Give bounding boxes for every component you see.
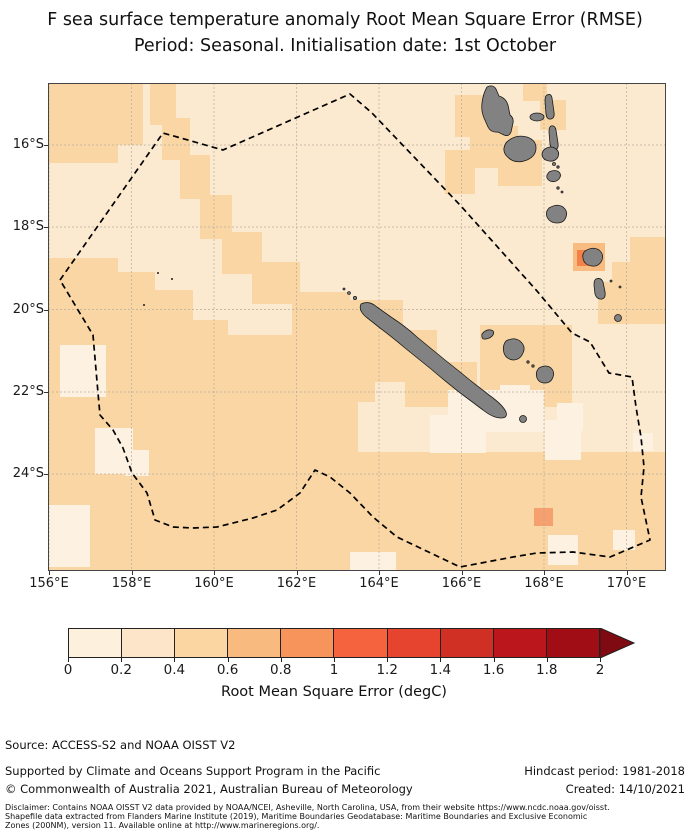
land-mare: [536, 366, 553, 383]
copyright-text: © Commonwealth of Australia 2021, Austra…: [5, 782, 413, 796]
lat-tickmark: [44, 145, 48, 146]
lon-tickmark: [132, 571, 133, 575]
source-text: Source: ACCESS-S2 and NOAA OISST V2: [5, 738, 235, 752]
cell-south-isolated: [534, 508, 553, 526]
colorbar-tickmark: [121, 658, 122, 662]
disclaimer-line-1: Disclaimer: Contains NOAA OISST V2 data …: [5, 803, 690, 812]
colorbar-segment: [69, 629, 122, 657]
colorbar-tickmark: [228, 658, 229, 662]
supported-by-text: Supported by Climate and Oceans Support …: [5, 764, 380, 778]
colorbar-tick-label: 1.2: [367, 662, 407, 678]
lat-tick-label: 24°S: [0, 466, 44, 481]
lon-tick-label: 166°E: [432, 576, 492, 591]
colorbar-tick-label: 0.4: [154, 662, 194, 678]
lon-tick-label: 160°E: [184, 576, 244, 591]
colorbar-tickmark: [600, 658, 601, 662]
lat-tick-label: 16°S: [0, 137, 44, 152]
lat-tickmark: [44, 474, 48, 475]
colorbar-tickmark: [68, 658, 69, 662]
colorbar-tickmark: [494, 658, 495, 662]
lon-tickmark: [462, 571, 463, 575]
land-lifou: [503, 339, 524, 360]
colorbar-segment: [281, 629, 334, 657]
map-area: [48, 83, 666, 571]
colorbar-tickmark: [547, 658, 548, 662]
colorbar-tickmark: [174, 658, 175, 662]
lon-tickmark: [544, 571, 545, 575]
colorbar-tick-label: 2: [580, 662, 620, 678]
map-svg: [48, 83, 666, 571]
hindcast-period-text: Hindcast period: 1981-2018: [524, 764, 685, 778]
land-efate: [546, 205, 566, 223]
colorbar-tick-label: 1.6: [474, 662, 514, 678]
colorbar-tick-label: 1.8: [527, 662, 567, 678]
colorbar-tick-label: 0.8: [261, 662, 301, 678]
colorbar-tick-label: 0: [48, 662, 88, 678]
colorbar-tickmark: [281, 658, 282, 662]
colorbar-segment: [494, 629, 547, 657]
created-date-text: Created: 14/10/2021: [566, 782, 685, 796]
lon-tickmark: [214, 571, 215, 575]
colorbar-label: Root Mean Square Error (degC): [68, 684, 600, 700]
lat-tickmark: [44, 392, 48, 393]
colorbar-segment: [441, 629, 494, 657]
land-isle-of-pines: [520, 416, 527, 423]
colorbar-segment: [228, 629, 281, 657]
land-epi: [547, 171, 561, 182]
figure-canvas: F sea surface temperature anomaly Root M…: [0, 0, 690, 839]
colorbar-segment: [388, 629, 441, 657]
lon-tick-label: 164°E: [349, 576, 409, 591]
lon-tickmark: [297, 571, 298, 575]
lon-tick-label: 168°E: [514, 576, 574, 591]
colorbar-extend-arrow: [600, 628, 636, 658]
colorbar-tickmark: [440, 658, 441, 662]
land-ambrym: [542, 147, 559, 161]
lat-tickmark: [44, 310, 48, 311]
lon-tickmark: [379, 571, 380, 575]
disclaimer-line-2: Shapefile data extracted from Flanders M…: [5, 812, 690, 821]
colorbar-tickmark: [334, 658, 335, 662]
lat-tick-label: 20°S: [0, 302, 44, 317]
colorbar-tickmark: [387, 658, 388, 662]
land-ambae: [530, 113, 544, 121]
land-malakula: [504, 136, 536, 162]
lon-tick-label: 170°E: [597, 576, 657, 591]
lon-tick-label: 156°E: [19, 576, 79, 591]
figure-title: F sea surface temperature anomaly Root M…: [0, 10, 690, 30]
lat-tickmark: [44, 227, 48, 228]
lat-tick-label: 18°S: [0, 219, 44, 234]
colorbar-segment: [547, 629, 599, 657]
lon-tickmark: [49, 571, 50, 575]
land-erromango: [583, 248, 603, 266]
colorbar-tick-label: 0.2: [101, 662, 141, 678]
lon-tick-label: 162°E: [267, 576, 327, 591]
colorbar-segment: [175, 629, 228, 657]
land-aneityum: [615, 315, 622, 322]
disclaimer-line-3: Zones (200NM), version 11. Available onl…: [5, 821, 690, 830]
lon-tickmark: [627, 571, 628, 575]
lat-tick-label: 22°S: [0, 384, 44, 399]
colorbar-tick-label: 1: [314, 662, 354, 678]
colorbar-segment: [334, 629, 387, 657]
colorbar: [68, 628, 600, 658]
colorbar-tick-label: 0.6: [208, 662, 248, 678]
colorbar-segment: [122, 629, 175, 657]
figure-subtitle: Period: Seasonal. Initialisation date: 1…: [0, 36, 690, 56]
colorbar-tick-label: 1.4: [420, 662, 460, 678]
lon-tick-label: 158°E: [102, 576, 162, 591]
